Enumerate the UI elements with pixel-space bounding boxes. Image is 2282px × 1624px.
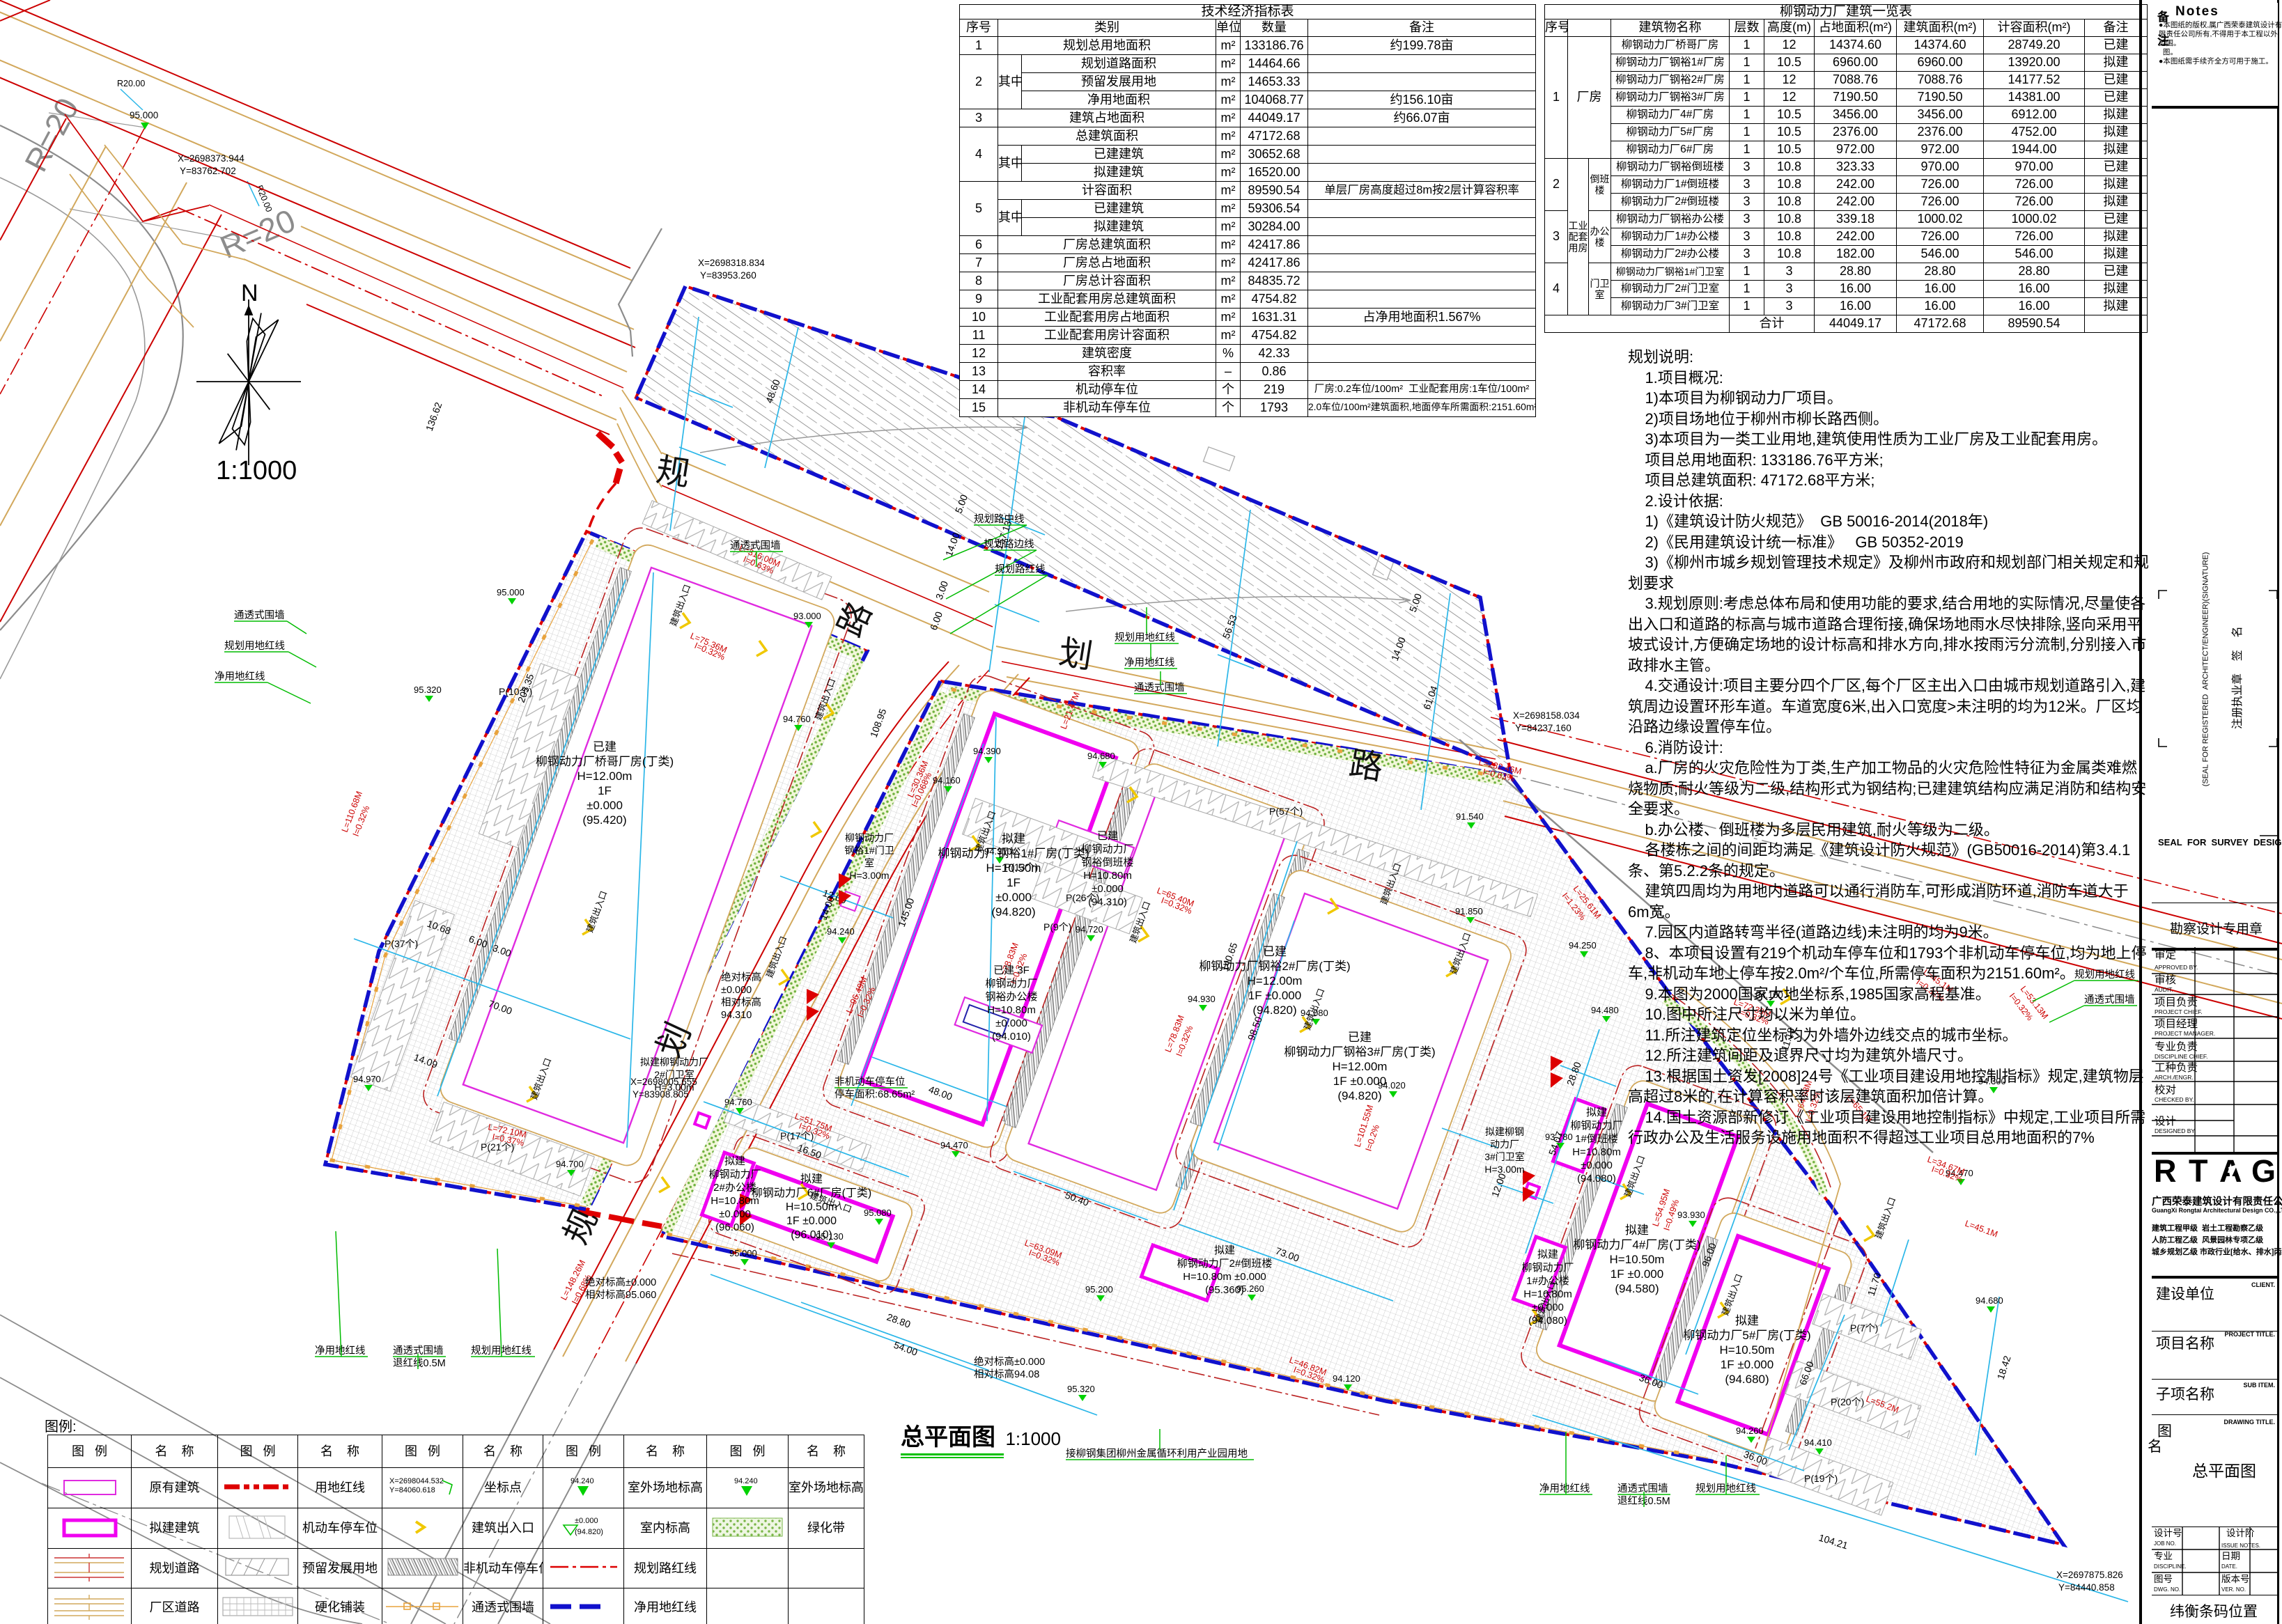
svg-text:R20.00: R20.00 — [254, 184, 274, 214]
svg-text:±0.000: ±0.000 — [995, 891, 1032, 904]
svg-text:通透式围墙: 通透式围墙 — [1617, 1483, 1668, 1494]
svg-text:通透式围墙: 通透式围墙 — [730, 540, 781, 552]
svg-text:28.80: 28.80 — [885, 1311, 913, 1330]
svg-text:H=10.80m: H=10.80m — [1083, 870, 1132, 882]
svg-text:(94.820): (94.820) — [1337, 1089, 1381, 1102]
svg-text:X=2698318.834: X=2698318.834 — [698, 258, 765, 268]
svg-text:94.390: 94.390 — [973, 746, 1001, 756]
svg-text:1F ±0.000: 1F ±0.000 — [1721, 1358, 1773, 1371]
svg-text:N: N — [241, 280, 258, 306]
svg-text:工种负责: 工种负责 — [2155, 1061, 2198, 1074]
svg-text:±0.000: ±0.000 — [587, 799, 623, 812]
svg-text:柳钢动力厂: 柳钢动力厂 — [1081, 843, 1133, 855]
svg-text:柳钢动力厂钢裕1#厂房(丁类): 柳钢动力厂钢裕1#厂房(丁类) — [938, 847, 1089, 860]
svg-text:设计: 设计 — [2155, 1115, 2176, 1127]
svg-text:柳钢动力厂4#厂房(丁类): 柳钢动力厂4#厂房(丁类) — [1573, 1238, 1700, 1251]
svg-text:DISCIPLINE.: DISCIPLINE. — [2154, 1563, 2187, 1570]
svg-text:建筑出入口: 建筑出入口 — [1873, 1196, 1897, 1240]
svg-text:91.850: 91.850 — [1455, 906, 1483, 916]
svg-text:通透式围墙: 通透式围墙 — [234, 609, 285, 621]
svg-text:R20.00: R20.00 — [117, 79, 145, 88]
svg-text:非机动车停车位: 非机动车停车位 — [835, 1076, 906, 1088]
svg-text:拟建: 拟建 — [1586, 1107, 1607, 1118]
svg-text:拟建: 拟建 — [1002, 832, 1025, 845]
svg-text:划: 划 — [1056, 634, 1095, 676]
svg-text:94.120: 94.120 — [1333, 1373, 1360, 1384]
svg-text:95.000: 95.000 — [130, 110, 158, 120]
svg-text:(95.420): (95.420) — [582, 813, 626, 827]
svg-text:净用地红线: 净用地红线 — [215, 671, 265, 682]
svg-text:H=12.00m: H=12.00m — [577, 770, 632, 783]
svg-text:ISSUE NOTES.: ISSUE NOTES. — [2221, 1543, 2260, 1549]
svg-text:接柳钢集团柳州金属循环利用产业园用地: 接柳钢集团柳州金属循环利用产业园用地 — [1066, 1448, 1248, 1460]
svg-text:93.000: 93.000 — [793, 611, 821, 621]
svg-text:94.480: 94.480 — [1591, 1005, 1619, 1015]
svg-text:P(10个): P(10个) — [499, 686, 532, 697]
svg-text:图号: 图号 — [2154, 1574, 2173, 1584]
svg-text:1F ±0.000: 1F ±0.000 — [1333, 1075, 1386, 1088]
svg-text:CHECKED BY.: CHECKED BY. — [2155, 1096, 2194, 1103]
svg-text:退红线0.5M: 退红线0.5M — [393, 1357, 446, 1369]
svg-text:停车面积:68.65m²: 停车面积:68.65m² — [835, 1088, 915, 1100]
svg-text:P(9个): P(9个) — [1043, 921, 1071, 932]
svg-text:1F ±0.000: 1F ±0.000 — [1610, 1267, 1663, 1281]
svg-text:(94.820): (94.820) — [991, 905, 1035, 919]
svg-text:规划路中线: 规划路中线 — [974, 513, 1025, 525]
svg-text:拟建: 拟建 — [1214, 1244, 1235, 1256]
svg-text:规划用地红线: 规划用地红线 — [1115, 632, 1175, 643]
svg-text:95.320: 95.320 — [414, 685, 442, 695]
svg-text:H=3.00m: H=3.00m — [654, 1082, 694, 1093]
svg-text:H=10.80m: H=10.80m — [711, 1195, 759, 1207]
svg-text:1:1000: 1:1000 — [216, 456, 297, 485]
svg-text:1F: 1F — [598, 784, 612, 797]
svg-text:R: R — [2154, 1153, 2177, 1188]
svg-text:(94.310): (94.310) — [1088, 896, 1127, 908]
svg-text:室: 室 — [864, 857, 874, 868]
svg-text:规: 规 — [653, 452, 692, 494]
svg-text:净用地红线: 净用地红线 — [1124, 657, 1175, 669]
svg-text:柳钢动力厂钢裕3#厂房(丁类): 柳钢动力厂钢裕3#厂房(丁类) — [1284, 1045, 1435, 1059]
svg-text:绝对标高: 绝对标高 — [721, 971, 761, 983]
svg-text:94.260: 94.260 — [1736, 1426, 1764, 1436]
svg-text:拟建: 拟建 — [1625, 1224, 1649, 1237]
svg-text:P(7个): P(7个) — [1850, 1322, 1878, 1334]
svg-text:104.21: 104.21 — [1817, 1532, 1849, 1552]
svg-text:±0.000: ±0.000 — [721, 985, 752, 996]
svg-text:Y=84440.858: Y=84440.858 — [2058, 1582, 2115, 1593]
svg-text:审核: 审核 — [2155, 974, 2176, 986]
svg-text:相对标高: 相对标高 — [721, 997, 761, 1008]
svg-text:94.760: 94.760 — [783, 714, 811, 724]
svg-text:±0.000: ±0.000 — [995, 1017, 1027, 1029]
svg-text:95.320: 95.320 — [1067, 1384, 1095, 1394]
svg-text:(95.360): (95.360) — [1205, 1284, 1244, 1296]
svg-text:94.700: 94.700 — [556, 1159, 584, 1169]
svg-text:3#门卫室: 3#门卫室 — [1484, 1151, 1525, 1162]
svg-text:钢裕办公楼: 钢裕办公楼 — [985, 991, 1037, 1003]
svg-text:95.000: 95.000 — [497, 587, 525, 598]
svg-text:VER. NO.: VER. NO. — [2221, 1586, 2246, 1593]
svg-text:柳钢动力厂: 柳钢动力厂 — [985, 978, 1037, 990]
svg-text:柳钢动力厂: 柳钢动力厂 — [1570, 1120, 1622, 1132]
svg-text:拟建: 拟建 — [724, 1155, 745, 1167]
svg-text:1F ±0.000: 1F ±0.000 — [1248, 989, 1301, 1002]
svg-text:95.080: 95.080 — [864, 1208, 892, 1218]
svg-text:X=2698373.944: X=2698373.944 — [178, 153, 244, 164]
svg-text:94.970: 94.970 — [353, 1074, 381, 1084]
svg-text:P(37个): P(37个) — [385, 938, 418, 949]
svg-text:91.540: 91.540 — [1456, 811, 1484, 822]
svg-text:P(57个): P(57个) — [1269, 806, 1303, 817]
svg-text:H=3.00m: H=3.00m — [849, 870, 889, 881]
svg-text:日期: 日期 — [2221, 1551, 2240, 1561]
svg-text:(94.680): (94.680) — [1725, 1373, 1769, 1386]
svg-text:94.250: 94.250 — [1569, 940, 1597, 951]
svg-text:±0.000: ±0.000 — [719, 1208, 751, 1220]
svg-text:2#门卫室: 2#门卫室 — [654, 1069, 694, 1080]
svg-text:JOB NO.: JOB NO. — [2154, 1540, 2176, 1547]
svg-text:H=10.80m: H=10.80m — [987, 1004, 1036, 1016]
svg-text:94.720: 94.720 — [1076, 924, 1103, 935]
svg-text:1F ±0.000: 1F ±0.000 — [786, 1215, 837, 1227]
svg-text:R=20: R=20 — [17, 92, 86, 178]
svg-text:路: 路 — [1346, 746, 1385, 788]
svg-text:94.160: 94.160 — [933, 775, 961, 786]
svg-text:相对标高95.060: 相对标高95.060 — [585, 1289, 656, 1301]
svg-text:94.680: 94.680 — [1087, 751, 1115, 761]
svg-text:95.000: 95.000 — [729, 1248, 757, 1258]
svg-text:P(21个): P(21个) — [481, 1141, 514, 1153]
svg-text:已建 3F: 已建 3F — [993, 965, 1030, 976]
svg-text:设计阶: 设计阶 — [2226, 1528, 2255, 1538]
svg-text:(94.820): (94.820) — [575, 1528, 603, 1536]
svg-text:X=2697875.826: X=2697875.826 — [2056, 1570, 2123, 1580]
svg-text:136.62: 136.62 — [424, 400, 444, 432]
svg-text:X=2698158.034: X=2698158.034 — [1513, 710, 1580, 721]
svg-text:专业负责: 专业负责 — [2155, 1040, 2198, 1053]
svg-text:(94.080): (94.080) — [1577, 1173, 1616, 1185]
svg-text:DATE.: DATE. — [2221, 1563, 2237, 1570]
svg-text:(96.060): (96.060) — [715, 1221, 754, 1233]
svg-text:H=12.00m: H=12.00m — [1333, 1060, 1388, 1073]
svg-text:±0.000: ±0.000 — [1581, 1160, 1613, 1171]
svg-text:净用地红线: 净用地红线 — [315, 1345, 366, 1357]
svg-text:18.42: 18.42 — [1995, 1354, 2013, 1380]
svg-text:已建: 已建 — [1097, 830, 1118, 842]
svg-text:(94.010): (94.010) — [992, 1031, 1031, 1043]
svg-text:H=3.00m: H=3.00m — [1484, 1164, 1524, 1175]
svg-text:DISCIPLINE CHIEF.: DISCIPLINE CHIEF. — [2155, 1053, 2208, 1060]
svg-text:柳钢动力厂钢裕2#厂房(丁类): 柳钢动力厂钢裕2#厂房(丁类) — [1199, 960, 1350, 973]
svg-text:校对: 校对 — [2155, 1084, 2176, 1096]
svg-text:2#办公楼: 2#办公楼 — [713, 1182, 756, 1194]
svg-text:(94.580): (94.580) — [1615, 1282, 1659, 1295]
svg-text:G: G — [2251, 1153, 2276, 1188]
svg-text:108.95: 108.95 — [868, 707, 889, 739]
svg-text:94.240: 94.240 — [570, 1477, 594, 1485]
svg-text:柳钢动力厂5#厂房(丁类): 柳钢动力厂5#厂房(丁类) — [1683, 1329, 1810, 1342]
svg-text:Y=84237.160: Y=84237.160 — [1515, 723, 1571, 733]
svg-text:H=10.50m: H=10.50m — [1720, 1343, 1775, 1357]
svg-text:PROJECT CHIEF.: PROJECT CHIEF. — [2155, 1008, 2203, 1015]
svg-text:规划路边线: 规划路边线 — [984, 538, 1034, 550]
svg-text:柳钢动力厂: 柳钢动力厂 — [708, 1169, 761, 1180]
svg-text:H=12.00m: H=12.00m — [1248, 974, 1303, 987]
svg-text:PROJECT MANAGER.: PROJECT MANAGER. — [2155, 1030, 2215, 1037]
svg-text:规划路红线: 规划路红线 — [995, 563, 1046, 575]
svg-text:规: 规 — [557, 1204, 605, 1250]
svg-text:P(17个): P(17个) — [780, 1130, 814, 1141]
svg-text:94.680: 94.680 — [1976, 1295, 2003, 1306]
svg-text:X=2698044.532: X=2698044.532 — [389, 1477, 444, 1485]
svg-text:H=10.50m: H=10.50m — [986, 861, 1041, 875]
svg-text:L=45.1M: L=45.1M — [1964, 1219, 1999, 1240]
svg-text:1#倒班楼: 1#倒班楼 — [1575, 1133, 1618, 1145]
svg-text:94.410: 94.410 — [1804, 1437, 1832, 1448]
svg-text:拟建柳钢: 拟建柳钢 — [1485, 1126, 1524, 1137]
svg-text:绝对标高±0.000: 绝对标高±0.000 — [585, 1276, 656, 1288]
svg-text:钢裕1#门卫: 钢裕1#门卫 — [844, 845, 894, 856]
svg-text:柳钢动力厂桥哥厂房(丁类): 柳钢动力厂桥哥厂房(丁类) — [536, 755, 674, 768]
svg-text:54.00: 54.00 — [892, 1339, 919, 1358]
svg-text:APPROVED BY.: APPROVED BY. — [2155, 964, 2198, 971]
svg-text:拟建柳钢动力厂: 拟建柳钢动力厂 — [640, 1056, 708, 1068]
svg-text:已建: 已建 — [1263, 945, 1287, 958]
svg-text:94.760: 94.760 — [724, 1097, 752, 1107]
svg-text:94.310: 94.310 — [721, 1010, 752, 1021]
svg-text:DWG. NO.: DWG. NO. — [2154, 1586, 2180, 1593]
svg-text:T: T — [2189, 1153, 2208, 1188]
svg-text:路: 路 — [832, 597, 879, 643]
svg-text:规划用地红线: 规划用地红线 — [224, 640, 285, 652]
svg-text:ARCH./ENGR.: ARCH./ENGR. — [2155, 1074, 2194, 1081]
svg-text:项目负责: 项目负责 — [2155, 996, 2198, 1008]
svg-text:净用地红线: 净用地红线 — [1539, 1483, 1590, 1494]
svg-text:已建: 已建 — [1348, 1031, 1372, 1044]
svg-text:H=10.80m ±0.000: H=10.80m ±0.000 — [1183, 1271, 1266, 1283]
svg-text:拟建: 拟建 — [1537, 1249, 1558, 1260]
svg-text:AUDIT.: AUDIT. — [2155, 986, 2173, 993]
svg-text:Y=83953.260: Y=83953.260 — [700, 270, 756, 281]
svg-text:柳钢动力厂: 柳钢动力厂 — [1521, 1262, 1574, 1274]
svg-text:拟建: 拟建 — [1735, 1314, 1759, 1327]
svg-text:6.00: 6.00 — [928, 610, 945, 632]
svg-text:H=10.80m: H=10.80m — [1572, 1146, 1621, 1158]
svg-text:版本号: 版本号 — [2221, 1574, 2250, 1584]
svg-text:已建: 已建 — [593, 740, 616, 754]
svg-text:拟建: 拟建 — [800, 1173, 823, 1185]
svg-text:Y=83762.702: Y=83762.702 — [180, 166, 236, 176]
svg-text:设计号: 设计号 — [2154, 1528, 2182, 1538]
svg-text:(94.820): (94.820) — [1252, 1004, 1296, 1017]
svg-text:94.470: 94.470 — [940, 1140, 968, 1150]
svg-text:相对标高94.08: 相对标高94.08 — [974, 1368, 1039, 1380]
svg-text:±0.000: ±0.000 — [575, 1517, 598, 1525]
svg-text:±0.000: ±0.000 — [1092, 883, 1124, 895]
svg-text:(96.010): (96.010) — [791, 1229, 832, 1241]
svg-text:1F: 1F — [1007, 876, 1020, 889]
svg-text:Y=84060.618: Y=84060.618 — [389, 1486, 435, 1494]
svg-text:93.930: 93.930 — [1677, 1210, 1705, 1220]
svg-text:DESIGNED BY.: DESIGNED BY. — [2155, 1127, 2196, 1134]
svg-text:94.240: 94.240 — [827, 926, 855, 937]
svg-text:柳钢动力厂: 柳钢动力厂 — [845, 832, 894, 843]
svg-text:柳钢动力厂2#倒班楼: 柳钢动力厂2#倒班楼 — [1177, 1258, 1273, 1270]
svg-text:94.930: 94.930 — [1188, 994, 1216, 1004]
svg-text:钢裕倒班楼: 钢裕倒班楼 — [1081, 857, 1133, 868]
svg-text:P(19个): P(19个) — [1804, 1473, 1838, 1484]
svg-text:审定: 审定 — [2155, 948, 2176, 961]
svg-text:94.240: 94.240 — [734, 1477, 758, 1485]
svg-text:P(20个): P(20个) — [1831, 1396, 1864, 1407]
svg-text:项目经理: 项目经理 — [2155, 1017, 2198, 1030]
svg-text:专业: 专业 — [2154, 1551, 2173, 1561]
svg-text:绝对标高±0.000: 绝对标高±0.000 — [974, 1356, 1045, 1368]
svg-text:95.200: 95.200 — [1085, 1284, 1113, 1295]
svg-text:通透式围墙: 通透式围墙 — [1134, 682, 1185, 694]
svg-text:H=10.50m: H=10.50m — [1610, 1253, 1665, 1266]
svg-text:动力厂: 动力厂 — [1490, 1139, 1519, 1150]
